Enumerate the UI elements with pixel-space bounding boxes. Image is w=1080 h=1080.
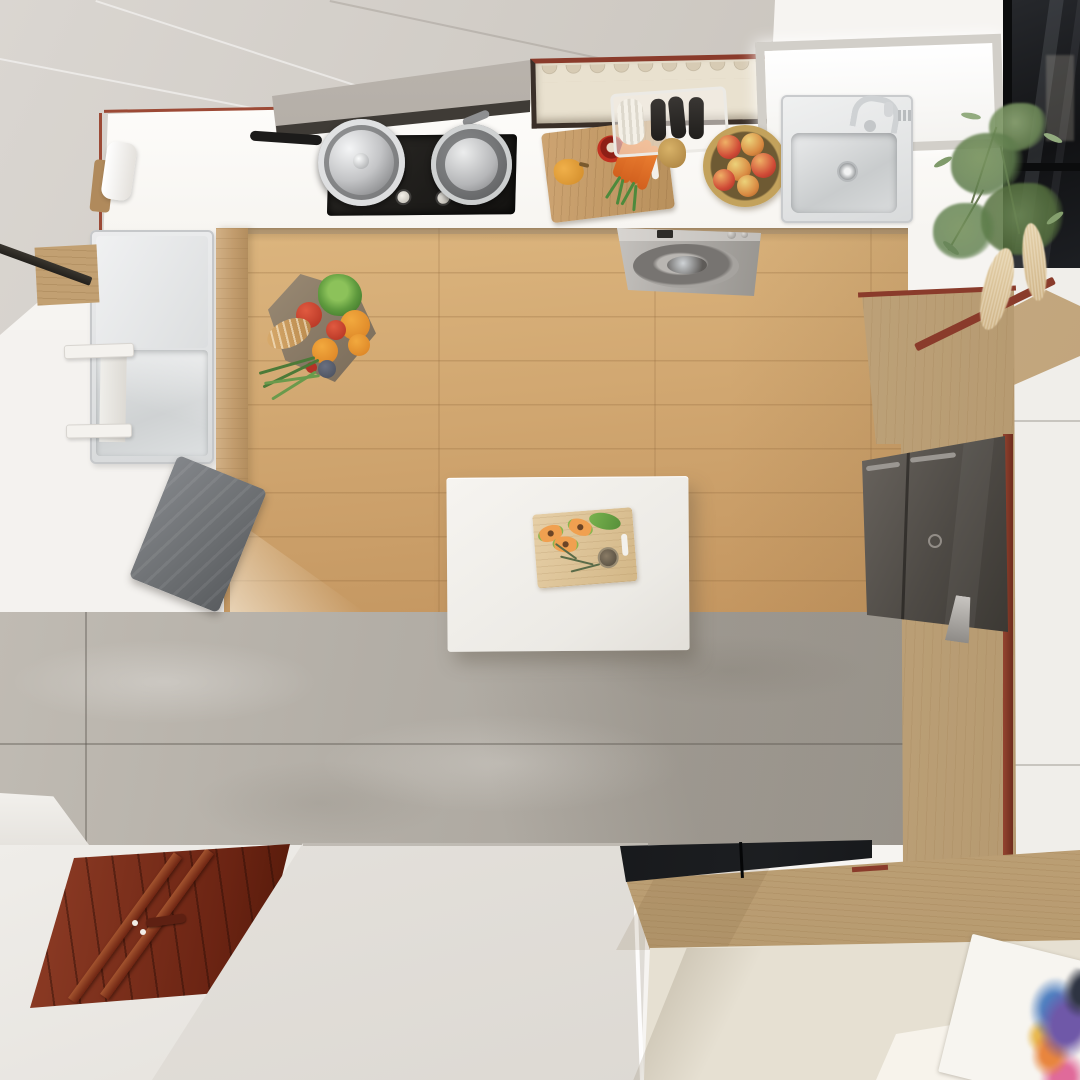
fruit-bowl: [703, 125, 787, 207]
rug-paint-print: [996, 956, 1080, 1080]
bottle: [650, 99, 666, 141]
fridge-logo: [928, 534, 942, 548]
tomato: [326, 320, 346, 340]
saucepan: [431, 124, 512, 205]
tile-seam: [1013, 420, 1080, 422]
foliage: [933, 203, 995, 259]
apple: [713, 169, 735, 191]
fridge-handle: [866, 462, 900, 472]
bottle: [668, 96, 687, 139]
pampas-grass: [973, 245, 1020, 333]
cabinet-wood-front: [216, 228, 248, 490]
refrigerator: [858, 434, 1010, 636]
bottle: [689, 97, 704, 139]
slab-top-shadow: [303, 843, 648, 846]
herb-sprig: [571, 563, 601, 572]
spice-jar: [599, 548, 617, 566]
sunlight-patch: [230, 516, 370, 616]
washer-display: [657, 230, 673, 238]
onion: [658, 138, 686, 168]
board-handle-slot: [621, 534, 629, 556]
apple: [717, 135, 741, 159]
vent-slot: [908, 110, 911, 121]
orange: [348, 334, 370, 356]
houseplant: [925, 95, 1080, 340]
sink-basin: [791, 133, 897, 213]
sink-drain: [839, 163, 856, 180]
vent-slot: [903, 110, 906, 121]
towel-roll: [616, 98, 645, 146]
kitchen-overhead-render: [0, 0, 1080, 1080]
door-knob-dot: [140, 929, 146, 935]
pinecone: [318, 360, 336, 378]
kitchen-island: [446, 476, 689, 652]
apple: [737, 175, 759, 197]
sink-drainboard: [96, 236, 208, 348]
lid-knob: [353, 153, 369, 169]
leaf: [961, 111, 982, 120]
washer-door: [633, 244, 739, 288]
fridge-door-seam: [901, 450, 910, 622]
door-handle: [146, 913, 187, 927]
faucet-base: [864, 120, 876, 132]
grocery-basket: [262, 268, 382, 390]
fridge-handle: [910, 452, 956, 463]
plate-row: [537, 60, 779, 82]
apple: [751, 153, 776, 178]
soap-dispenser: [884, 102, 893, 117]
faucet-bar: [64, 343, 134, 359]
faucet-bar: [66, 423, 132, 438]
island-cutting-board: [532, 507, 637, 588]
washer-door-glass: [667, 256, 707, 274]
cooktop-knob: [397, 191, 409, 203]
washing-machine: [613, 224, 763, 298]
leaf: [1043, 131, 1064, 145]
pot-with-lid: [318, 119, 405, 206]
tile-seam: [1013, 764, 1080, 766]
counter-front-shadow: [224, 228, 908, 234]
vent-slot: [898, 110, 901, 121]
door-stile: [68, 852, 182, 1004]
door-knob-dot: [132, 920, 138, 926]
